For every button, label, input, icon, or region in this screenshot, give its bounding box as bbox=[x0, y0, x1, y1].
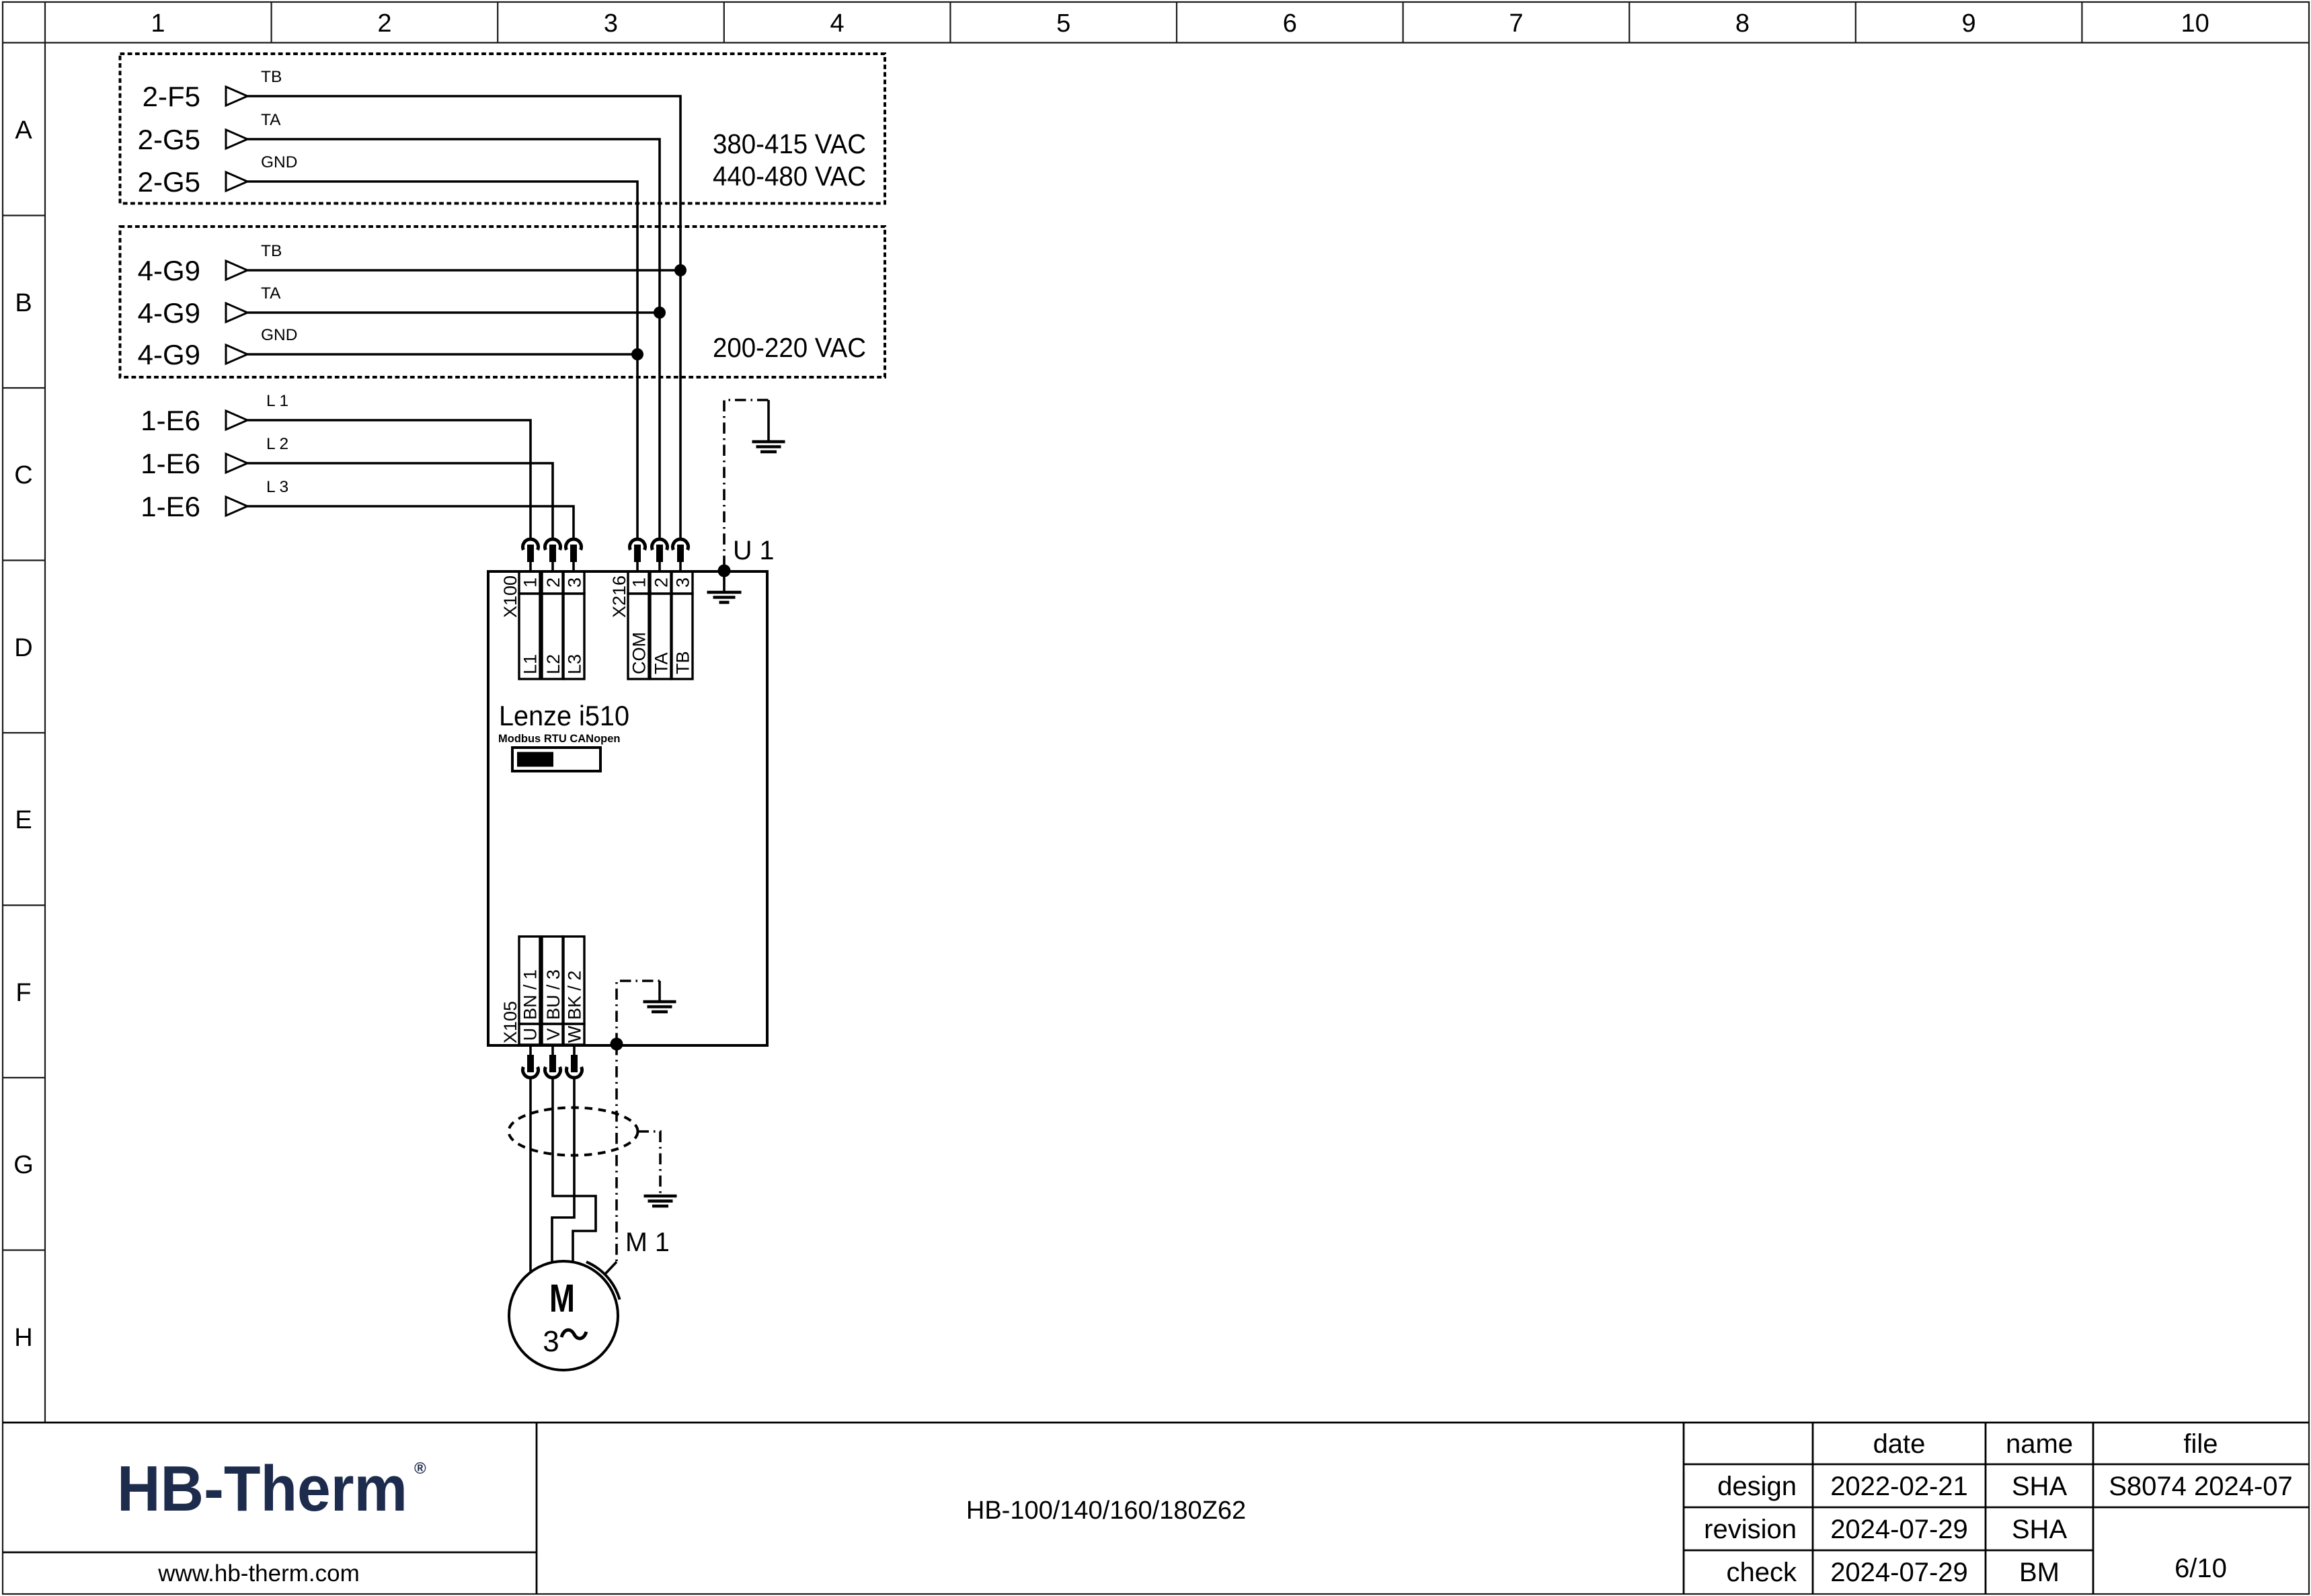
svg-text:COM: COM bbox=[629, 632, 650, 674]
svg-text:4: 4 bbox=[830, 9, 845, 38]
svg-text:TB: TB bbox=[261, 68, 282, 86]
svg-text:M: M bbox=[549, 1277, 575, 1320]
svg-text:7: 7 bbox=[1509, 9, 1523, 38]
svg-text:SHA: SHA bbox=[2012, 1515, 2068, 1544]
svg-text:HB-Therm: HB-Therm bbox=[117, 1453, 407, 1525]
svg-text:C: C bbox=[14, 461, 32, 489]
svg-text:BU / 3: BU / 3 bbox=[543, 969, 563, 1020]
svg-text:®: ® bbox=[414, 1460, 426, 1478]
svg-text:BK / 2: BK / 2 bbox=[565, 970, 585, 1020]
svg-text:GND: GND bbox=[261, 153, 297, 171]
svg-text:9: 9 bbox=[1962, 9, 1976, 38]
svg-text:GND: GND bbox=[261, 326, 297, 344]
svg-text:U: U bbox=[520, 1028, 541, 1041]
svg-text:1: 1 bbox=[520, 577, 541, 588]
svg-text:2-G5: 2-G5 bbox=[138, 166, 200, 198]
svg-text:4-G9: 4-G9 bbox=[138, 339, 200, 370]
svg-text:6: 6 bbox=[1283, 9, 1297, 38]
svg-text:date: date bbox=[1873, 1429, 1926, 1459]
svg-text:L2: L2 bbox=[543, 654, 563, 674]
svg-text:M 1: M 1 bbox=[625, 1228, 670, 1257]
svg-text:revision: revision bbox=[1704, 1515, 1797, 1544]
svg-text:BM: BM bbox=[2019, 1558, 2060, 1587]
svg-text:L 2: L 2 bbox=[266, 435, 288, 453]
svg-text:3: 3 bbox=[673, 577, 693, 588]
svg-text:A: A bbox=[15, 116, 32, 145]
svg-text:200-220 VAC: 200-220 VAC bbox=[713, 332, 866, 363]
svg-text:G: G bbox=[13, 1151, 34, 1179]
svg-text:TB: TB bbox=[673, 651, 693, 674]
svg-text:U 1: U 1 bbox=[733, 536, 774, 565]
svg-text:5: 5 bbox=[1056, 9, 1070, 38]
svg-text:1-E6: 1-E6 bbox=[141, 491, 200, 522]
svg-text:Modbus RTU CANopen: Modbus RTU CANopen bbox=[498, 733, 620, 745]
svg-text:4-G9: 4-G9 bbox=[138, 297, 200, 329]
svg-text:3: 3 bbox=[543, 1325, 559, 1358]
svg-text:2: 2 bbox=[652, 577, 672, 588]
svg-text:SHA: SHA bbox=[2012, 1472, 2068, 1501]
svg-text:check: check bbox=[1727, 1558, 1797, 1587]
svg-text:2022-02-21: 2022-02-21 bbox=[1830, 1472, 1968, 1501]
svg-text:E: E bbox=[15, 806, 32, 834]
svg-text:3: 3 bbox=[565, 577, 585, 588]
svg-text:2-F5: 2-F5 bbox=[143, 81, 200, 112]
svg-text:1: 1 bbox=[151, 9, 165, 38]
svg-text:V: V bbox=[543, 1028, 563, 1040]
svg-text:X100: X100 bbox=[500, 575, 520, 618]
svg-text:L1: L1 bbox=[520, 654, 541, 674]
svg-text:1-E6: 1-E6 bbox=[141, 405, 200, 436]
svg-text:D: D bbox=[14, 634, 32, 662]
svg-text:design: design bbox=[1717, 1472, 1797, 1501]
svg-text:S8074 2024-07: S8074 2024-07 bbox=[2109, 1472, 2293, 1501]
svg-text:X216: X216 bbox=[609, 575, 629, 618]
svg-text:BN / 1: BN / 1 bbox=[520, 969, 541, 1020]
svg-text:TB: TB bbox=[261, 242, 282, 260]
svg-text:1: 1 bbox=[629, 577, 650, 588]
svg-text:2024-07-29: 2024-07-29 bbox=[1830, 1515, 1968, 1544]
svg-text:W: W bbox=[565, 1025, 585, 1043]
svg-text:B: B bbox=[15, 289, 32, 317]
svg-text:8: 8 bbox=[1735, 9, 1750, 38]
svg-text:www.hb-therm.com: www.hb-therm.com bbox=[157, 1560, 360, 1587]
svg-text:HB-100/140/160/180Z62: HB-100/140/160/180Z62 bbox=[966, 1497, 1246, 1525]
svg-text:TA: TA bbox=[652, 653, 672, 675]
svg-text:10: 10 bbox=[2181, 9, 2209, 38]
svg-text:2: 2 bbox=[543, 577, 563, 588]
svg-text:Lenze i510: Lenze i510 bbox=[499, 700, 629, 731]
svg-text:1-E6: 1-E6 bbox=[141, 448, 200, 479]
svg-text:L 1: L 1 bbox=[266, 392, 288, 410]
svg-text:file: file bbox=[2183, 1429, 2218, 1459]
svg-text:2024-07-29: 2024-07-29 bbox=[1830, 1558, 1968, 1587]
svg-text:F: F bbox=[15, 979, 31, 1007]
svg-text:4-G9: 4-G9 bbox=[138, 255, 200, 286]
svg-text:X105: X105 bbox=[500, 1001, 520, 1043]
svg-text:440-480 VAC: 440-480 VAC bbox=[713, 161, 866, 192]
svg-text:name: name bbox=[2006, 1429, 2073, 1459]
svg-text:380-415 VAC: 380-415 VAC bbox=[713, 128, 866, 159]
svg-text:6/10: 6/10 bbox=[2175, 1554, 2227, 1583]
svg-text:TA: TA bbox=[261, 284, 281, 303]
svg-text:H: H bbox=[14, 1324, 32, 1352]
svg-text:L3: L3 bbox=[565, 654, 585, 674]
svg-text:TA: TA bbox=[261, 111, 281, 129]
svg-text:2: 2 bbox=[377, 9, 391, 38]
svg-text:L 3: L 3 bbox=[266, 478, 288, 496]
svg-text:3: 3 bbox=[604, 9, 618, 38]
svg-text:2-G5: 2-G5 bbox=[138, 124, 200, 155]
